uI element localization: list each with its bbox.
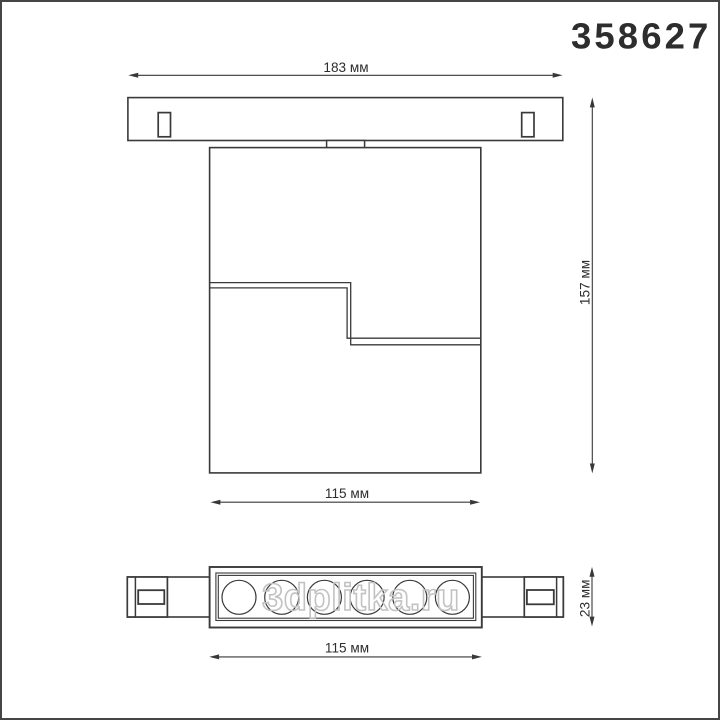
svg-text:183 мм: 183 мм — [323, 60, 368, 75]
svg-text:115 мм: 115 мм — [325, 641, 369, 656]
svg-text:3dplitka.ru: 3dplitka.ru — [262, 577, 460, 619]
svg-text:358627: 358627 — [571, 16, 711, 57]
svg-text:115 мм: 115 мм — [325, 486, 369, 501]
svg-text:157 мм: 157 мм — [577, 260, 592, 305]
svg-text:23 мм: 23 мм — [577, 580, 592, 618]
